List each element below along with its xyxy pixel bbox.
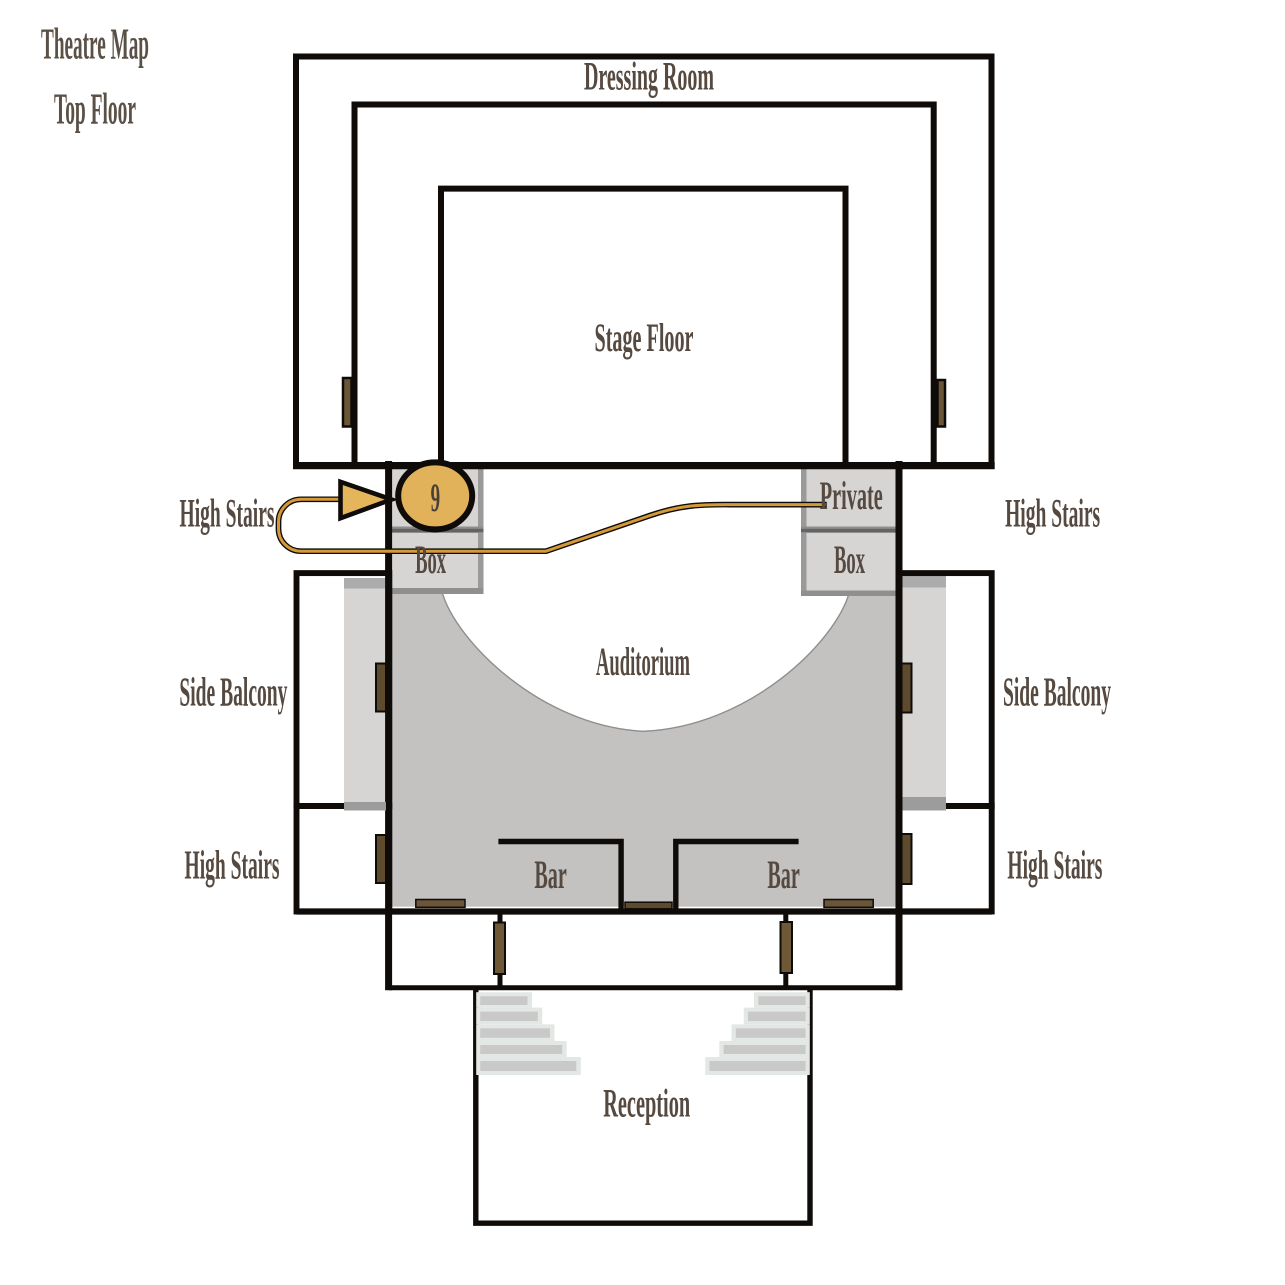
svg-text:Box: Box <box>415 537 446 582</box>
svg-text:Side Balcony: Side Balcony <box>1003 668 1111 714</box>
svg-text:Stage Floor: Stage Floor <box>595 315 694 360</box>
svg-text:High Stairs: High Stairs <box>1005 490 1100 535</box>
svg-text:Bar: Bar <box>534 852 566 897</box>
svg-text:Auditorium: Auditorium <box>596 639 690 684</box>
svg-text:Bar: Bar <box>767 852 799 897</box>
svg-text:High Stairs: High Stairs <box>180 490 275 535</box>
svg-text:Reception: Reception <box>603 1081 690 1126</box>
svg-text:High Stairs: High Stairs <box>185 842 280 888</box>
svg-text:Private: Private <box>820 473 883 518</box>
svg-text:Theatre Map: Theatre Map <box>41 20 149 69</box>
svg-text:Top Floor: Top Floor <box>54 85 136 134</box>
svg-text:High Stairs: High Stairs <box>1007 842 1102 888</box>
svg-text:Box: Box <box>834 537 865 582</box>
svg-text:9: 9 <box>431 475 441 520</box>
svg-text:Dressing Room: Dressing Room <box>584 54 714 99</box>
svg-text:Side Balcony: Side Balcony <box>179 668 287 714</box>
